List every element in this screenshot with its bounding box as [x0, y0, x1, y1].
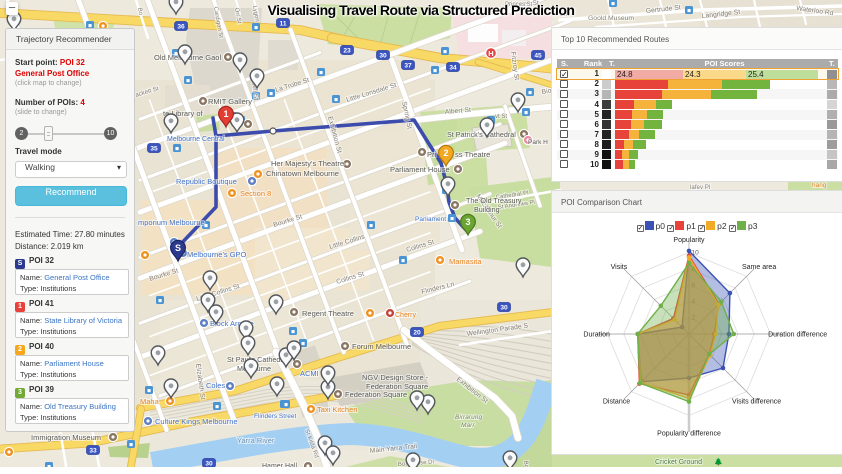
svg-text:Duration: Duration — [583, 332, 610, 339]
svg-text:Visits: Visits — [611, 264, 628, 271]
svg-text:23: 23 — [343, 48, 351, 55]
svg-text:ACMI: ACMI — [300, 369, 319, 378]
svg-text:Federation Square: Federation Square — [345, 390, 407, 399]
svg-text:Visits difference: Visits difference — [732, 398, 781, 405]
svg-text:Duration difference: Duration difference — [768, 332, 827, 339]
svg-text:Park H: Park H — [528, 139, 548, 146]
svg-text:Her Majesty's Theatre: Her Majesty's Theatre — [271, 159, 344, 168]
svg-text:■: ■ — [186, 78, 190, 85]
svg-text:RMIT Gallery: RMIT Gallery — [208, 97, 252, 106]
svg-text:The Old Treasury: The Old Treasury — [466, 196, 522, 205]
svg-text:30: 30 — [500, 305, 508, 312]
svg-text:Republic Boutique: Republic Boutique — [176, 177, 237, 186]
svg-text:■: ■ — [369, 223, 373, 230]
svg-text:20: 20 — [413, 330, 421, 337]
svg-text:Distance: Distance — [603, 398, 630, 405]
svg-text:■: ■ — [319, 70, 323, 77]
svg-text:■: ■ — [401, 258, 405, 265]
svg-text:S: S — [175, 243, 181, 253]
svg-text:■: ■ — [254, 25, 258, 32]
svg-text:30: 30 — [379, 53, 387, 60]
svg-text:Bg: Bg — [522, 460, 529, 467]
svg-text:■: ■ — [47, 464, 51, 467]
svg-text:Immigration Museum: Immigration Museum — [31, 433, 101, 442]
svg-text:Yarra River: Yarra River — [237, 436, 275, 445]
svg-text:■: ■ — [129, 442, 133, 449]
svg-text:2: 2 — [443, 148, 448, 158]
svg-text:35: 35 — [150, 146, 158, 153]
svg-text:Maha: Maha — [140, 397, 160, 406]
svg-text:mporium Melbourne: mporium Melbourne — [138, 218, 205, 227]
svg-text:Parliament: Parliament — [415, 216, 446, 223]
svg-text:Regent Theatre: Regent Theatre — [302, 309, 354, 318]
svg-text:■: ■ — [450, 216, 454, 223]
svg-text:Melbourne Central: Melbourne Central — [167, 136, 225, 143]
svg-text:■: ■ — [433, 68, 437, 75]
svg-text:45: 45 — [534, 53, 542, 60]
svg-text:Same area: Same area — [742, 264, 776, 271]
svg-text:St Patrick's Cathedral: St Patrick's Cathedral — [447, 130, 516, 139]
svg-text:Hamer Hall: Hamer Hall — [262, 463, 297, 467]
svg-text:■: ■ — [334, 97, 338, 104]
svg-text:36: 36 — [177, 24, 185, 31]
svg-text:1: 1 — [223, 109, 228, 119]
svg-text:vt St: vt St — [495, 114, 507, 120]
svg-text:Flinders Street: Flinders Street — [254, 413, 296, 420]
svg-text:11: 11 — [280, 21, 287, 28]
svg-text:■: ■ — [215, 404, 219, 411]
svg-text:H: H — [488, 49, 493, 58]
svg-text:hang: hang — [812, 182, 827, 189]
svg-text:■: ■ — [175, 146, 179, 153]
svg-text:33: 33 — [89, 448, 97, 455]
svg-text:Forum Melbourne: Forum Melbourne — [352, 342, 411, 351]
svg-text:Mamasita: Mamasita — [449, 257, 482, 266]
svg-text:34: 34 — [449, 65, 457, 72]
svg-text:Taxi Kitchen: Taxi Kitchen — [317, 405, 357, 414]
svg-text:Pri: Pri — [427, 150, 437, 159]
svg-text:■: ■ — [284, 402, 288, 409]
svg-text:Birrarung: Birrarung — [455, 414, 482, 421]
svg-text:■: ■ — [269, 91, 273, 98]
svg-text:Building: Building — [474, 205, 500, 214]
svg-text:Chinatown Melbourne: Chinatown Melbourne — [266, 169, 339, 178]
svg-text:NGV Design Store -: NGV Design Store - — [362, 373, 429, 382]
svg-text:■: ■ — [291, 329, 295, 336]
svg-text:■: ■ — [524, 110, 528, 117]
svg-text:■: ■ — [443, 49, 447, 56]
svg-text:Parliament House: Parliament House — [390, 165, 450, 174]
svg-text:Cherry: Cherry — [395, 312, 417, 319]
svg-text:37: 37 — [404, 63, 412, 70]
svg-text:ss Theatre: ss Theatre — [455, 150, 490, 159]
svg-text:■: ■ — [301, 341, 305, 348]
svg-text:■: ■ — [528, 90, 532, 97]
svg-text:30: 30 — [205, 461, 213, 467]
svg-text:■: ■ — [158, 298, 162, 305]
svg-text:Section 8: Section 8 — [240, 189, 271, 198]
svg-text:Marr: Marr — [461, 422, 475, 429]
svg-text:Culture Kings Melbourne: Culture Kings Melbourne — [155, 417, 238, 426]
svg-text:Popularity: Popularity — [673, 237, 705, 244]
svg-text:Melbourne's GPO: Melbourne's GPO — [187, 250, 247, 259]
svg-text:Coles: Coles — [206, 381, 225, 390]
svg-text:Popularity difference: Popularity difference — [657, 430, 721, 437]
svg-text:3: 3 — [465, 217, 470, 227]
svg-text:■: ■ — [147, 388, 151, 395]
